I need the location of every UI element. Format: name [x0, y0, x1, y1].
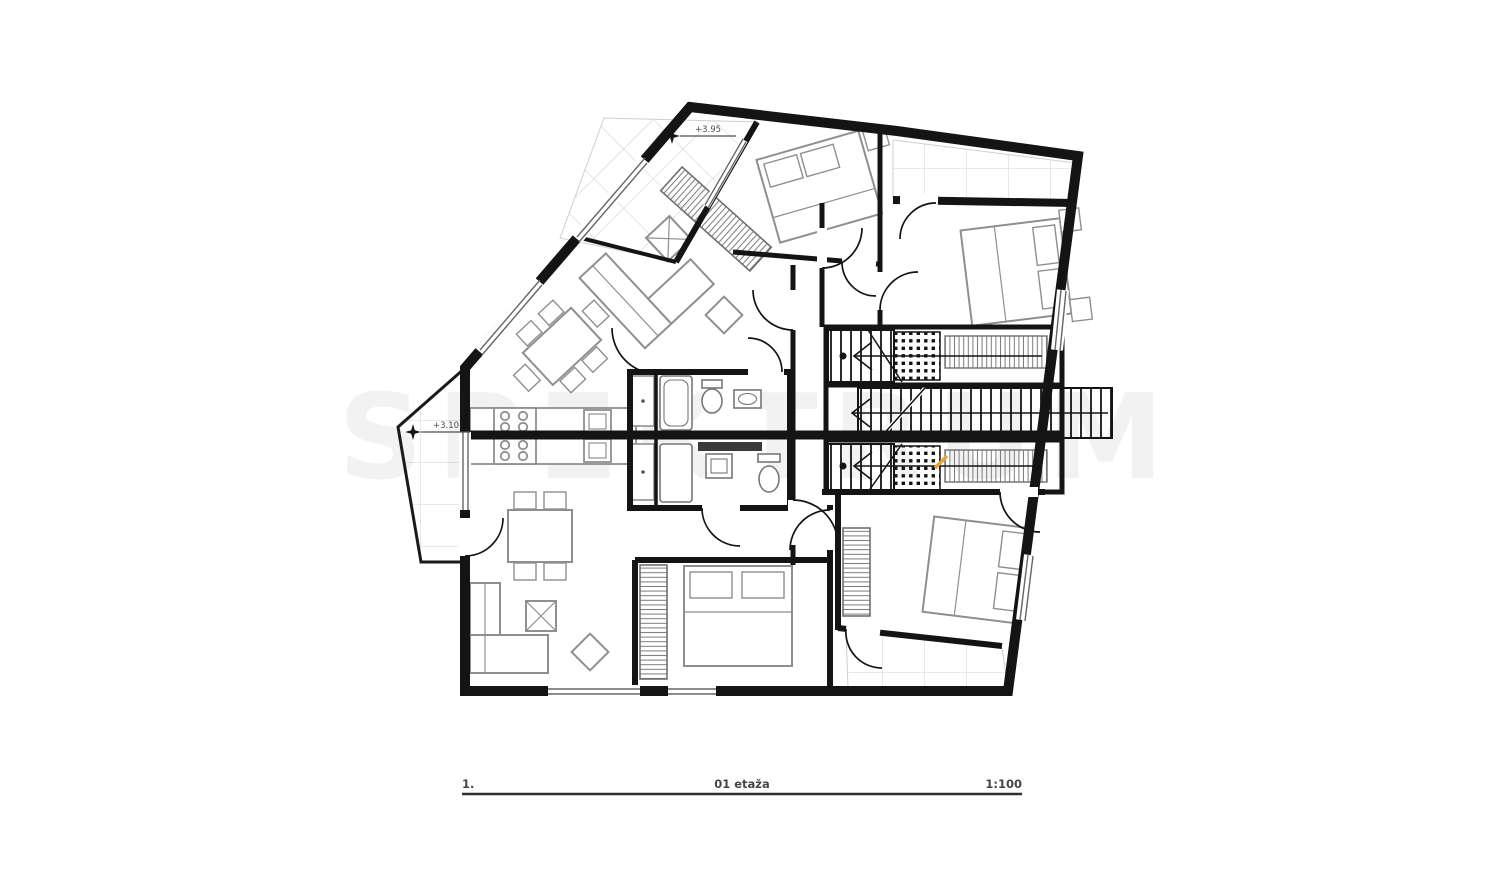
floor-plan-page: SPEKTRUM	[0, 0, 1500, 895]
stove-bottom-icon	[494, 437, 536, 464]
bedroom-3-furniture	[843, 517, 1029, 624]
elevation-upper-label: +3.95	[695, 125, 721, 135]
window-left-wall	[463, 432, 468, 510]
drawing-title: 01 etaža	[714, 777, 770, 791]
wardrobe-3-icon	[843, 528, 870, 616]
toilet-top-icon	[702, 380, 722, 388]
title-block: 1. 01 etaža 1:100	[462, 777, 1022, 794]
wardrobe-stair-upper-icon	[945, 336, 1047, 368]
kitchen-bottom-unit	[470, 437, 636, 464]
pouf-1-icon	[706, 297, 743, 334]
window-bottom-1	[548, 689, 640, 694]
vanity-counter-icon	[698, 442, 762, 451]
door-bathroom-bottom	[702, 508, 740, 546]
sheet-number: 1.	[462, 777, 474, 791]
door-bedroom2	[880, 272, 918, 310]
pouf-2-icon	[572, 634, 609, 671]
wardrobe-4-icon	[640, 565, 667, 679]
window-bottom-2	[668, 689, 716, 694]
handrail-post-upper	[840, 353, 847, 360]
toilet-bottom-icon	[758, 454, 780, 462]
floor-plan-canvas: SPEKTRUM	[0, 0, 1500, 895]
dining-table-bottom-left-icon	[508, 510, 572, 562]
bed-1-icon	[756, 124, 907, 243]
door-bathroom-top	[748, 338, 782, 372]
door-unit-top-left	[753, 290, 793, 330]
door-balcony-top-right	[900, 203, 936, 239]
bed-3-icon	[923, 517, 1030, 624]
living-bottom-left-furniture	[470, 492, 608, 673]
handrail-post-lower	[840, 463, 847, 470]
shower-bottom-icon	[660, 444, 692, 502]
drawing-scale: 1:100	[985, 777, 1022, 791]
stair-landing-lower	[894, 446, 940, 492]
bedroom-4-furniture	[640, 565, 792, 679]
elevation-lower-label: +3.10	[433, 421, 459, 431]
